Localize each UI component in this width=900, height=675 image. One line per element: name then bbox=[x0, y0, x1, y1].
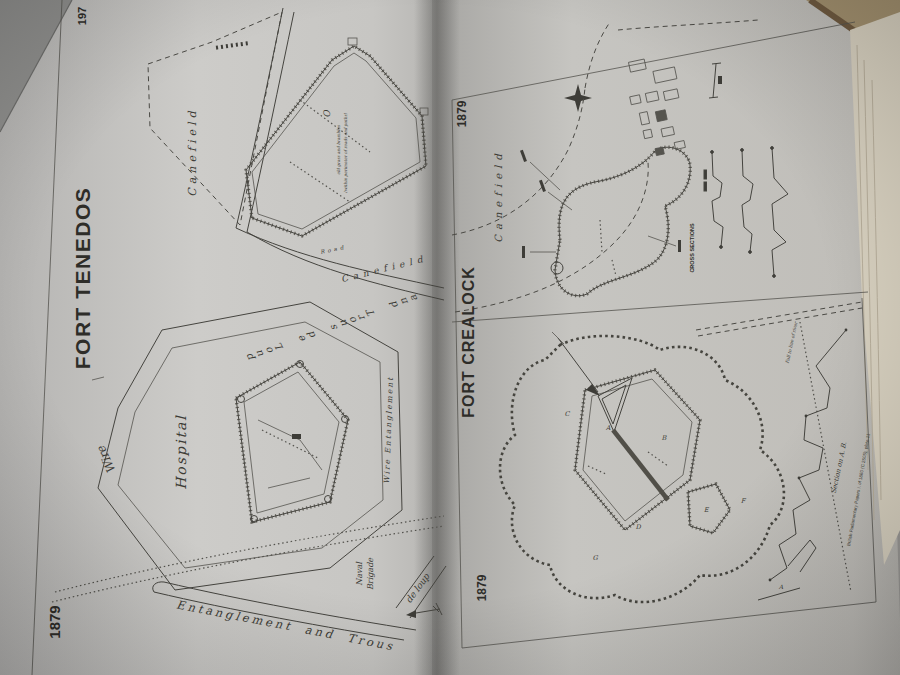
book-photo-svg: 197 FORT TENEDOS 1879 Canefield Road Can… bbox=[0, 0, 900, 675]
photo-vignette bbox=[0, 0, 900, 675]
book-photo: 197 FORT TENEDOS 1879 Canefield Road Can… bbox=[0, 0, 900, 675]
